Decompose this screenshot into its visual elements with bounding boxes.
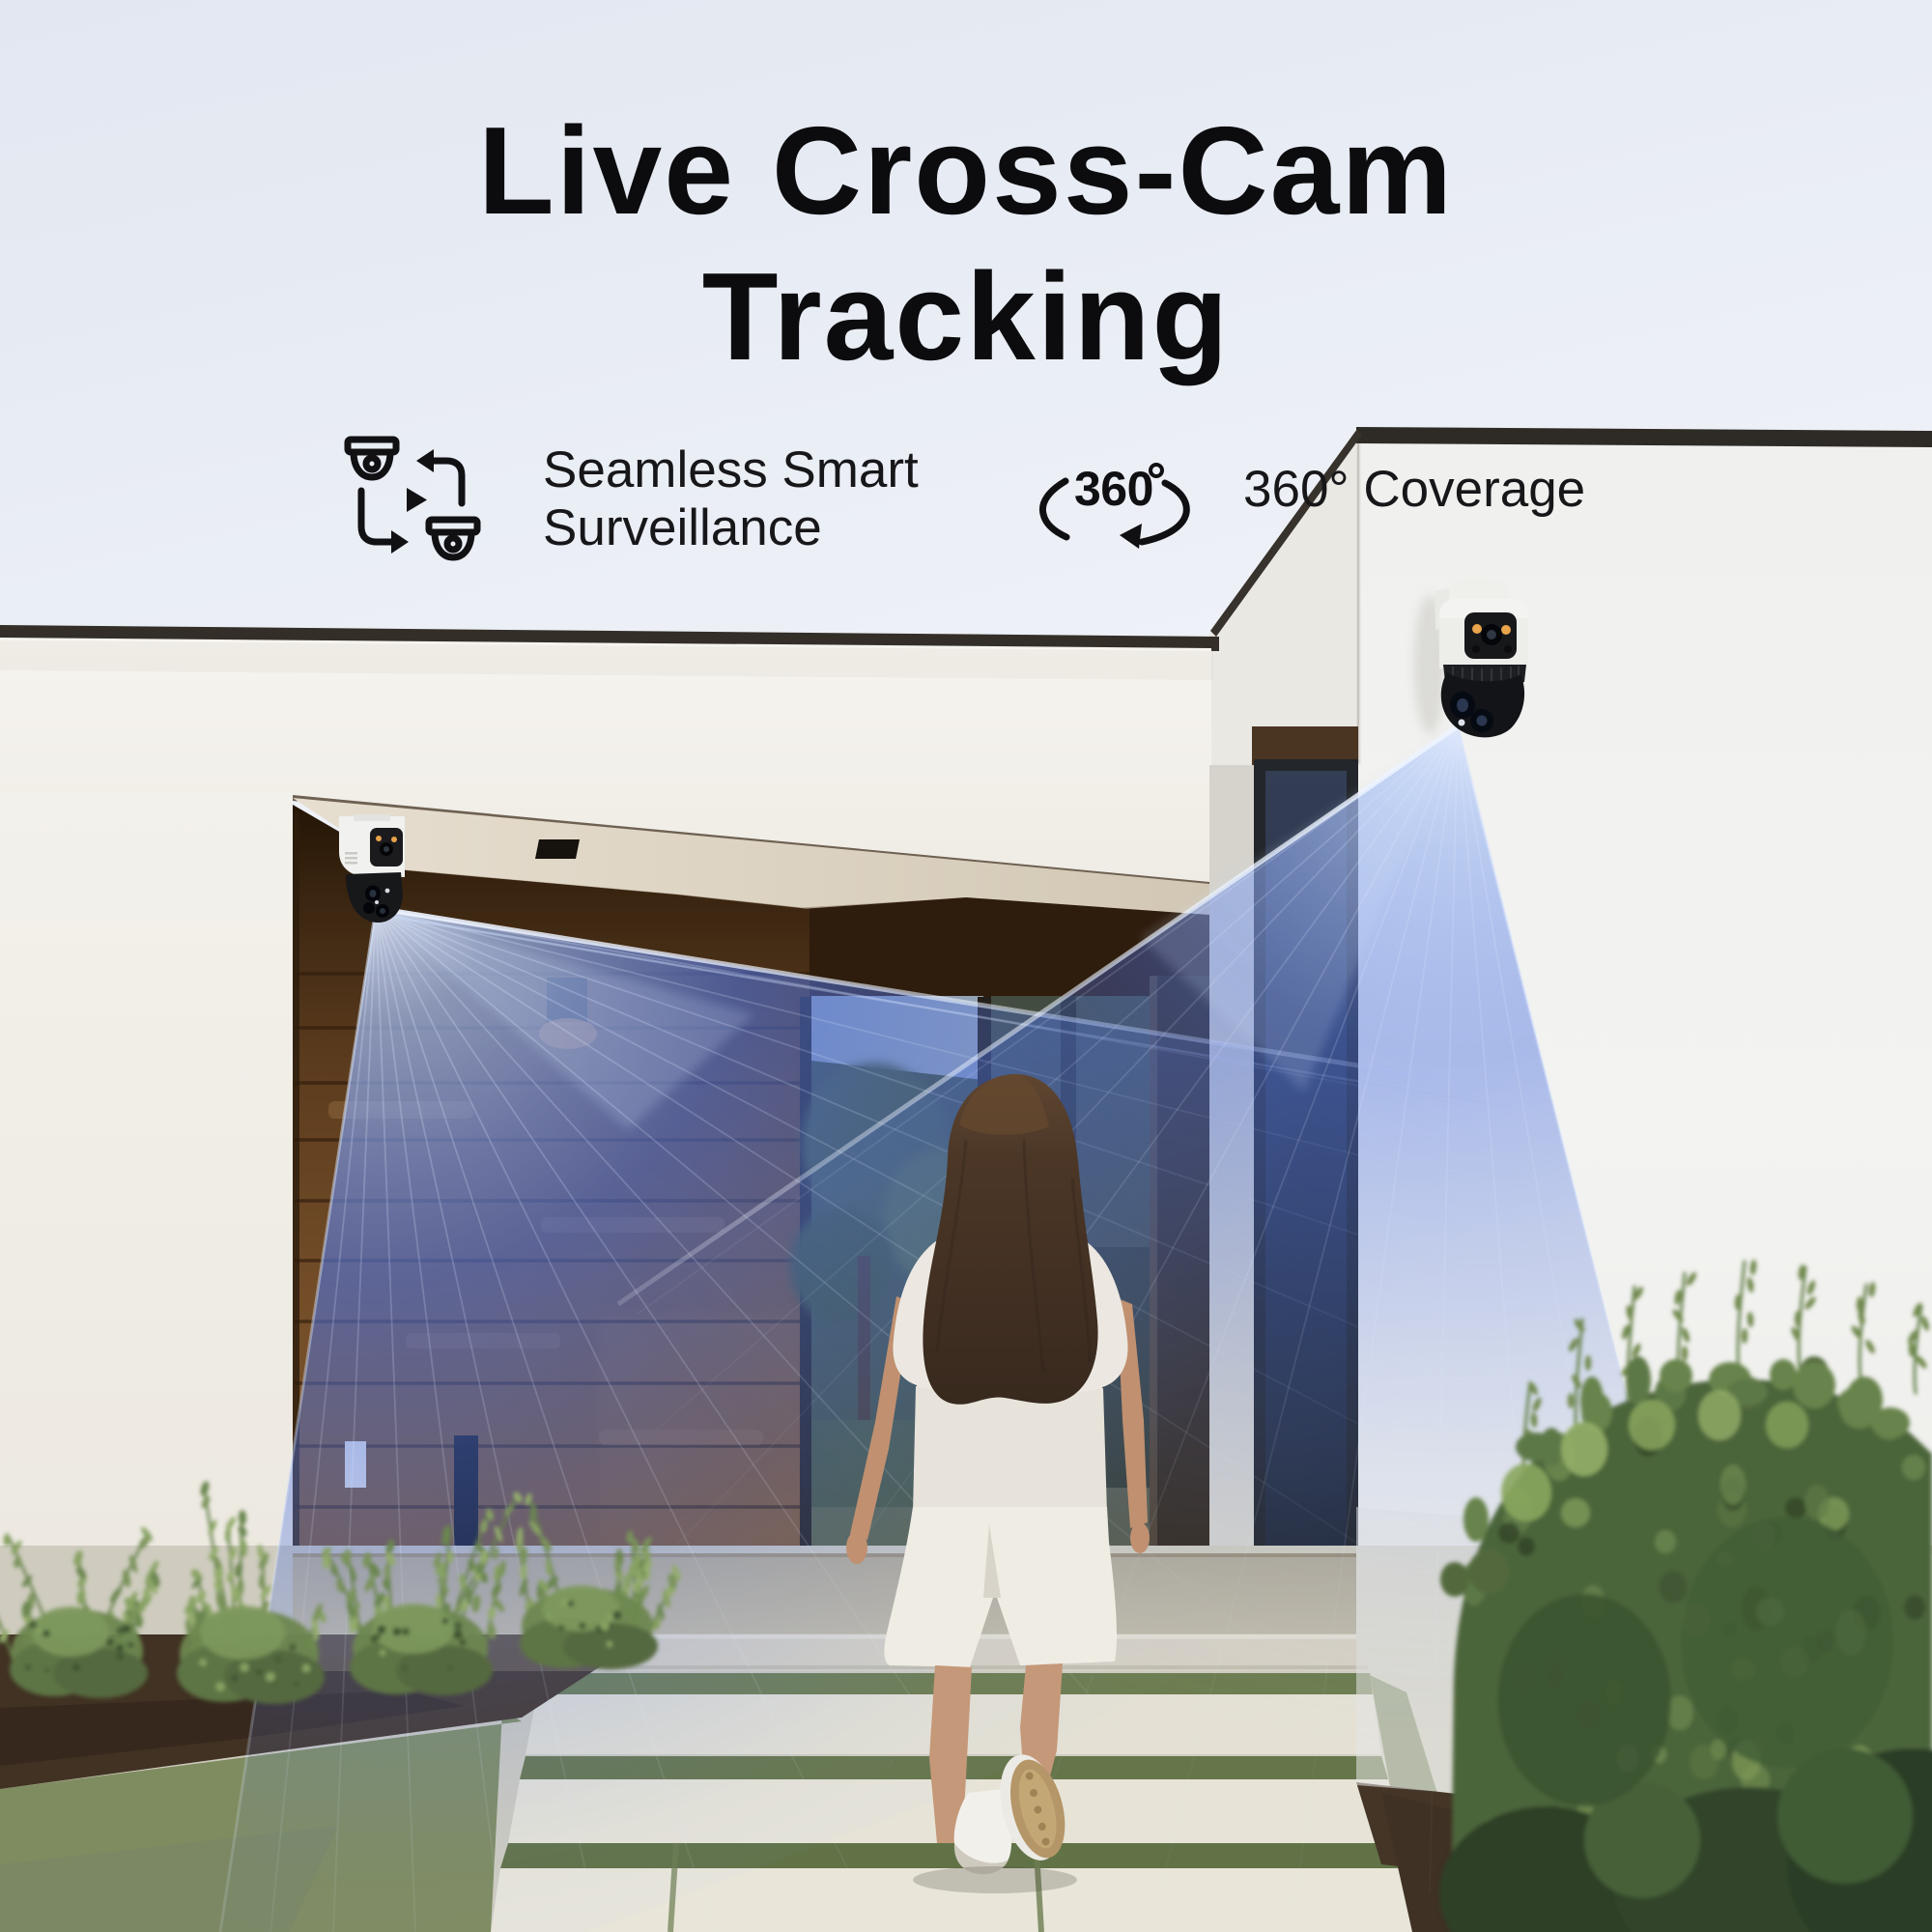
svg-text:360: 360 xyxy=(1074,462,1153,516)
